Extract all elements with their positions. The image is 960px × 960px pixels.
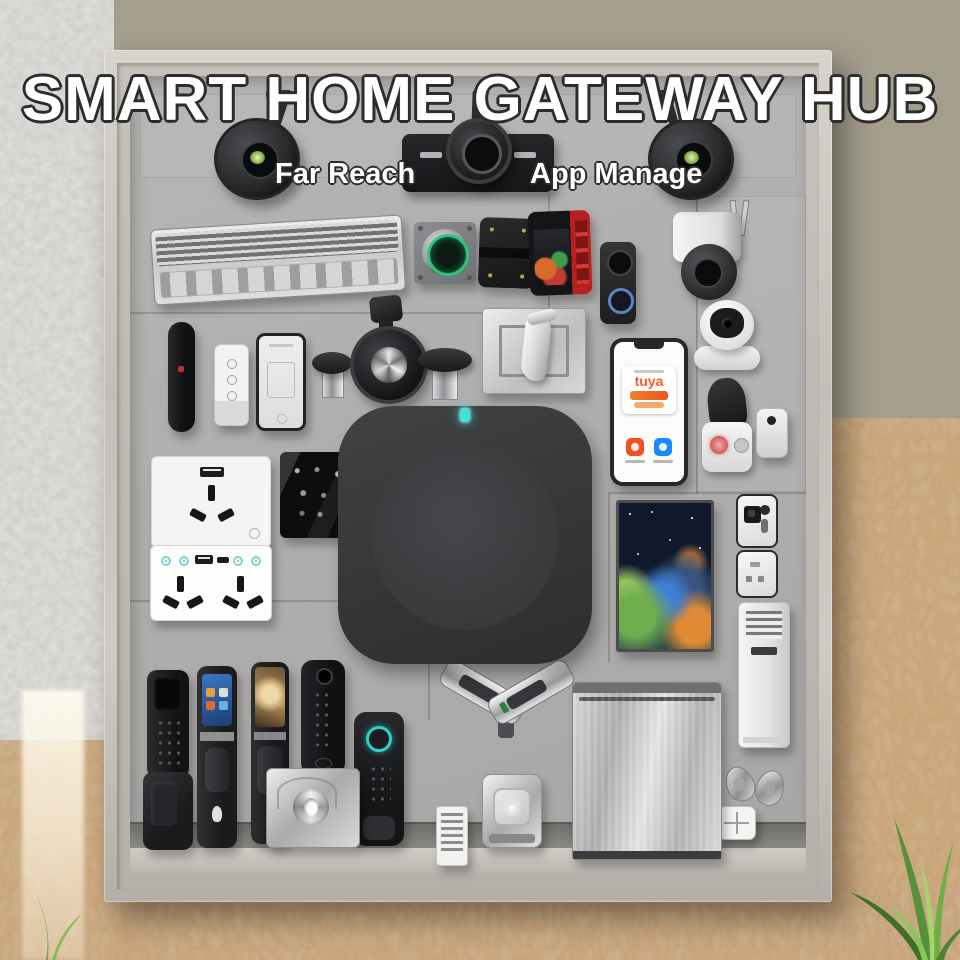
smart-lock-screen	[197, 666, 237, 848]
smart-display	[616, 500, 714, 652]
video-intercom	[736, 494, 778, 598]
scene-switch	[718, 806, 756, 840]
cube-camera	[482, 774, 542, 848]
steel-panel	[572, 682, 722, 860]
doorbell-camera	[607, 250, 633, 276]
smart-lock-slim	[301, 660, 345, 775]
mini-sensor	[756, 408, 788, 458]
smart-thermostat	[414, 222, 476, 284]
remote-control-black	[168, 322, 195, 432]
door-lever-plate	[482, 308, 586, 394]
mini-vent	[436, 806, 468, 866]
usb-wall-socket	[151, 456, 271, 548]
smart-knob-left	[312, 352, 352, 400]
tuya-smart-app-icon	[626, 438, 644, 456]
feature-label-far-reach: Far Reach	[275, 158, 415, 191]
double-usb-socket	[150, 545, 272, 621]
outdoor-ptz-camera	[671, 200, 753, 304]
page-title: SMART HOME GATEWAY HUB	[0, 64, 960, 135]
smart-lock-keypad	[147, 670, 189, 778]
smart-siren	[698, 378, 758, 474]
thermostat-display	[427, 234, 469, 276]
plant-sprig-bottom-left	[28, 880, 88, 960]
smart-remote-white	[214, 344, 249, 426]
lens-glow	[250, 151, 265, 164]
smartphone-tuya-app: tuya	[610, 338, 688, 486]
led-light-bar	[150, 214, 406, 305]
siren-light	[710, 436, 728, 454]
gimbal-lens	[371, 347, 407, 383]
smart-display-screen	[619, 503, 711, 649]
tower-air-conditioner	[738, 602, 790, 748]
keyhole	[304, 798, 318, 816]
indoor-camera-lens	[722, 318, 732, 328]
doorbell-button	[608, 288, 634, 314]
video-doorbell	[600, 242, 636, 324]
hub-status-led	[460, 408, 470, 422]
energy-control-panel	[528, 210, 593, 296]
indoor-camera	[694, 300, 760, 376]
smartphone-small	[256, 333, 306, 431]
camera-gimbal	[350, 296, 420, 398]
product-showcase-image: SMART HOME GATEWAY HUB Far Reach App Man…	[0, 0, 960, 960]
fingerprint-lock	[354, 712, 404, 846]
tuya-logo: tuya	[622, 374, 676, 389]
gateway-hub	[338, 406, 592, 664]
ptz-lens	[693, 258, 723, 288]
earbuds	[726, 762, 790, 806]
smart-knob-right	[418, 348, 472, 402]
fingerprint-ring	[366, 726, 392, 752]
tuya-brand-card: tuya	[622, 366, 676, 414]
smart-life-app-icon	[654, 438, 672, 456]
control-panel-screen	[533, 229, 571, 286]
feature-label-app-manage: App Manage	[530, 158, 702, 191]
plant-bottom-right	[836, 800, 960, 960]
rim-lock	[266, 768, 360, 848]
smart-lock-keypad-base	[143, 772, 193, 850]
